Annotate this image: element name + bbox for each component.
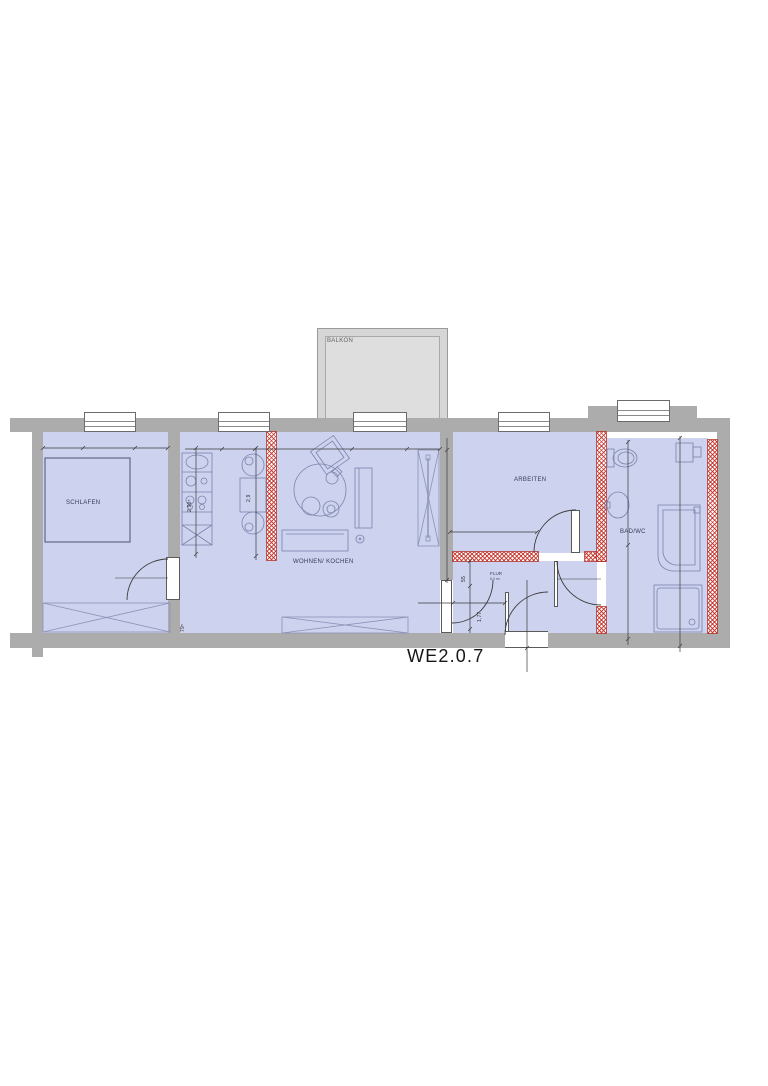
door-arc-bad <box>557 561 601 605</box>
washing-machine-symbol <box>654 585 702 632</box>
tilted-chair-symbol <box>311 436 350 475</box>
flur-area-label: 6,0 m² <box>490 577 500 581</box>
bad-wc-label: BAD/WC <box>620 529 646 535</box>
schlafen-label: SCHLAFEN <box>66 500 100 506</box>
door-arc-arbeiten <box>534 510 576 552</box>
dimension-lines <box>41 436 682 672</box>
sink-symbol <box>605 492 629 518</box>
plan-linework <box>0 0 768 1086</box>
dim-kitchen-depth: 2.90⁵ <box>187 499 193 512</box>
flur-label: FLUR <box>490 571 502 576</box>
tall-cupboard-symbol <box>418 450 439 546</box>
wardrobe-wohnen-symbol <box>282 617 408 633</box>
wohnen-kochen-label: WOHNEN/ KOCHEN <box>293 559 354 565</box>
door-arc-wohnen-flur <box>452 580 493 623</box>
dining-set-symbol <box>240 454 266 534</box>
arbeiten-label: ARBEITEN <box>514 477 546 483</box>
floor-plan-page: BALKON <box>0 0 768 1086</box>
bathtub-symbol <box>658 505 700 571</box>
door-arc-entrance <box>505 592 548 635</box>
dim-schlafen-bottom: 79⁵ <box>180 624 186 632</box>
apartment-title: WE2.0.7 <box>407 646 484 667</box>
round-table-symbol <box>294 464 346 517</box>
sideboard-symbol <box>282 530 364 551</box>
sofa-symbol <box>355 468 372 528</box>
dim-flur-width: 55 <box>461 576 467 582</box>
dim-flur-length: 1,77 <box>477 611 483 622</box>
dim-dining-width: 2,9 <box>246 494 252 502</box>
toilet-symbol <box>607 449 637 467</box>
door-arc-schlafen <box>115 559 168 600</box>
wardrobe-schlafen-symbol <box>43 603 170 632</box>
